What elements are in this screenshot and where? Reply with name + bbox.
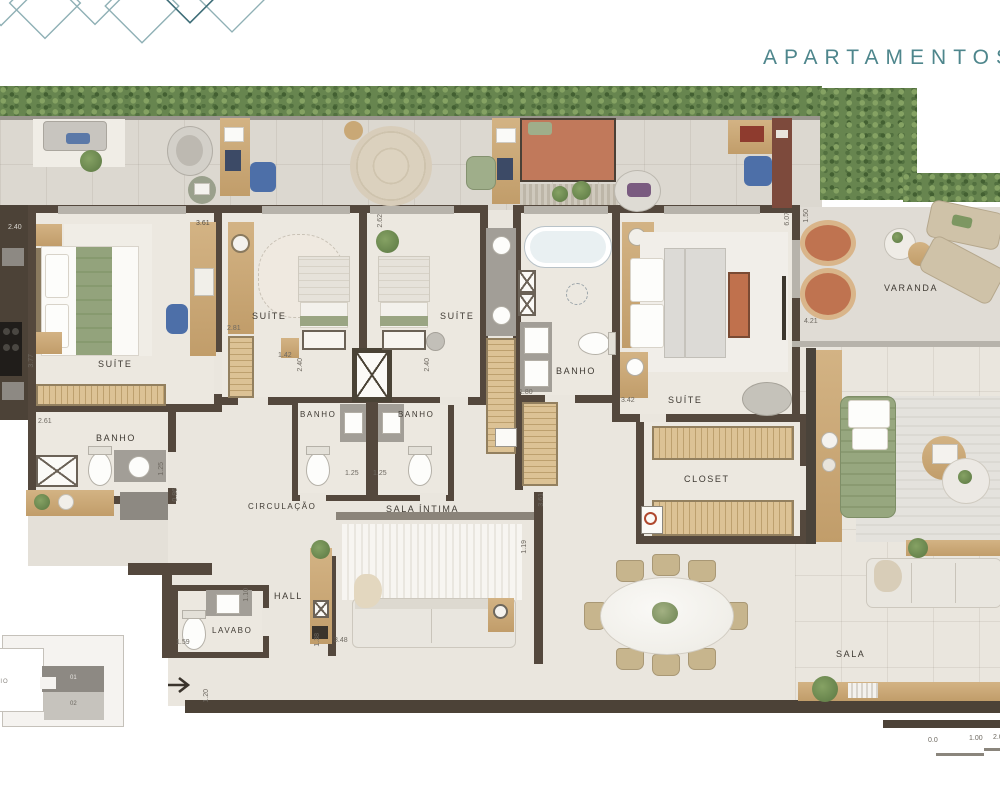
dimension: 2.40	[297, 358, 304, 372]
shower-box-icon	[36, 455, 78, 487]
sink-icon	[626, 358, 644, 376]
blue-chair	[744, 156, 772, 186]
shower-drain-icon	[566, 283, 588, 305]
dimension: 3.48	[334, 637, 348, 644]
wall-clock-deco	[231, 234, 250, 253]
sideboard-deco	[848, 683, 878, 698]
door-gap	[238, 397, 268, 405]
notebook	[225, 150, 241, 171]
slat-rug	[520, 184, 618, 205]
sink-icon	[128, 456, 150, 478]
room-label: SUÍTE	[668, 395, 703, 405]
green-chair	[466, 156, 496, 190]
bottom-wall	[185, 700, 1000, 713]
door-gap	[214, 352, 222, 394]
sink-icon	[524, 327, 549, 354]
keyplan-notch	[40, 677, 56, 689]
small-table	[344, 121, 363, 140]
door-gap	[640, 414, 666, 422]
blue-pillow	[66, 133, 90, 144]
wall-segment	[162, 570, 172, 658]
dimension: 1.25	[373, 470, 387, 477]
service-door-2	[2, 382, 24, 400]
nightstand	[36, 224, 62, 246]
dining-chair	[652, 554, 680, 576]
toilet-tank	[88, 446, 112, 455]
sofa-throw	[874, 560, 902, 592]
toilet-tank	[408, 446, 432, 455]
bathtub-basin	[530, 231, 606, 263]
magazine-rack	[313, 600, 329, 618]
nightstand	[36, 332, 62, 354]
centerpiece	[652, 602, 678, 624]
bath-mat	[120, 492, 168, 520]
washer-drum	[644, 512, 657, 525]
room-label: SUÍTE	[440, 311, 475, 321]
dimension: 1.50	[803, 209, 810, 223]
room-label: SALA ÍNTIMA	[386, 504, 459, 514]
door-gap	[420, 493, 446, 501]
duvet	[664, 248, 726, 358]
dining-chair	[688, 560, 716, 582]
dimension: 3.77	[28, 354, 35, 368]
blue-chair	[250, 162, 276, 192]
room-label: CLOSET	[684, 474, 730, 484]
bed-frame	[302, 330, 346, 350]
room-label: VARANDA	[884, 283, 938, 293]
console-deco	[822, 458, 836, 472]
bed-double-master	[626, 246, 750, 360]
dining-chair	[616, 560, 644, 582]
papers	[224, 127, 244, 142]
floorplan-page: { "header": { "title": "APARTAMENTOS CO"…	[0, 0, 1000, 800]
terracotta-chair	[800, 268, 856, 320]
dimension: 6.07	[784, 212, 791, 226]
window	[664, 206, 760, 214]
scale-tick: 0.0	[928, 737, 938, 744]
sofa-seam	[431, 603, 432, 643]
wall-segment	[534, 492, 543, 664]
dimension: 3.42	[621, 397, 635, 404]
quilt-pillow	[378, 256, 430, 302]
closet-row-bottom	[652, 500, 794, 536]
brand-logo	[0, 0, 272, 62]
burner-1	[3, 328, 10, 335]
sofa-pillow	[852, 428, 888, 450]
keyplan-side-label: RIO	[0, 679, 9, 685]
bed-single	[378, 256, 430, 352]
dimension: 1.59	[176, 639, 190, 646]
terracotta-chair	[800, 220, 856, 266]
room-label: SALA	[836, 649, 865, 659]
burner-4	[12, 344, 19, 351]
plant-pot	[80, 150, 102, 172]
dimension: 0.86	[172, 488, 179, 502]
room-label: BANHO	[398, 410, 434, 419]
scale-tick: 2.00	[993, 734, 1000, 741]
room-label: BANHO	[96, 433, 136, 443]
entry-arrow-icon	[166, 676, 194, 694]
scale-bar-segment	[936, 753, 984, 756]
green-fold	[380, 316, 428, 326]
quilt-pillow	[298, 256, 350, 302]
toilet-tank	[182, 610, 206, 619]
dimension: 2.81	[227, 325, 241, 332]
cabinet-deco	[776, 130, 788, 138]
dimension: 1.25	[345, 470, 359, 477]
dimension: 4.21	[804, 318, 818, 325]
bottom-right-band	[883, 720, 1000, 728]
shower-door-icon	[518, 293, 536, 316]
scale-bar-segment	[984, 748, 1000, 751]
room-label: BANHO	[556, 366, 596, 376]
sink-icon	[524, 360, 549, 387]
shelf-plant	[311, 540, 330, 559]
sink-icon	[216, 594, 240, 614]
sofa-seam	[911, 563, 912, 603]
room-label: HALL	[274, 591, 303, 601]
keyplan-unit-label: 02	[70, 701, 77, 707]
blue-pouf	[166, 304, 188, 334]
window	[262, 206, 350, 214]
dimension: 3.61	[196, 220, 210, 227]
plant-pot	[572, 181, 591, 200]
door-gap	[168, 452, 176, 488]
room-label: BANHO	[300, 410, 336, 419]
room-label: SUÍTE	[252, 311, 287, 321]
varanda-door	[792, 240, 800, 298]
tv-deco	[194, 268, 214, 296]
toilet-icon	[408, 452, 432, 486]
plant-pot	[552, 186, 568, 202]
papers	[496, 128, 516, 143]
keyplan: 01 02 RIO	[0, 633, 132, 729]
round-chair	[742, 382, 792, 416]
toilet-tank	[306, 446, 330, 455]
keyplan-unit-label: 01	[70, 675, 77, 681]
door-gap	[440, 397, 468, 405]
plant-pot	[376, 230, 399, 253]
green-fold	[300, 316, 348, 326]
door-gap	[300, 493, 326, 501]
bench-terracotta	[728, 272, 750, 338]
bed-frame	[382, 330, 426, 350]
dimension: 1.19	[521, 540, 528, 554]
tray	[194, 183, 210, 195]
plant-pot	[34, 494, 50, 510]
toilet-icon	[578, 332, 610, 355]
round-rug	[350, 126, 432, 206]
egg-chair-cushion	[176, 135, 203, 166]
room-label: LAVABO	[212, 626, 252, 635]
hedge-right-strip	[903, 173, 1000, 202]
console-deco	[821, 432, 838, 449]
pillow	[630, 258, 664, 302]
sofa-seam	[955, 563, 956, 603]
hedge-top	[0, 86, 822, 118]
suite-mid1-closet	[228, 336, 254, 398]
laundry-box	[495, 428, 517, 447]
scale-tick: 1.00	[969, 735, 983, 742]
toilet-tank	[608, 332, 616, 355]
green-throw	[76, 247, 112, 355]
shaft-x-icon	[352, 348, 392, 402]
tv-panel-line	[782, 276, 786, 340]
sideboard-plant	[812, 676, 838, 702]
bed-single	[298, 256, 350, 352]
dimension: 1.25	[158, 462, 165, 476]
pillow	[45, 254, 69, 298]
closet-row-top	[652, 426, 794, 460]
speaker-deco	[493, 604, 508, 619]
red-laptop	[740, 126, 764, 142]
door-gap	[262, 608, 269, 636]
daybed-pillow	[528, 122, 552, 135]
service-door-1	[2, 248, 24, 266]
table-plant	[892, 232, 903, 243]
notebook	[497, 158, 513, 180]
dimension: 1.80	[519, 389, 533, 396]
sink-icon	[344, 412, 363, 434]
dining-chair	[652, 654, 680, 676]
dimension: 1.38	[314, 633, 321, 647]
deco-bowl	[58, 494, 74, 510]
burner-3	[3, 344, 10, 351]
sofa-pillow	[848, 400, 890, 428]
toilet-icon	[306, 452, 330, 486]
dimension: 1.10	[243, 588, 250, 602]
hall-wardrobe	[522, 402, 558, 486]
burner-2	[12, 328, 19, 335]
page-title: APARTAMENTOS CO	[763, 46, 1000, 70]
room-label: CIRCULAÇÃO	[248, 502, 316, 511]
console-plant	[908, 538, 928, 558]
roof-notch	[917, 86, 1000, 173]
sink-icon	[492, 236, 511, 255]
dimension: 2.40	[424, 358, 431, 372]
dimension: 2.62	[377, 214, 384, 228]
dimension: 1.20	[203, 689, 210, 703]
duvet-fold	[684, 248, 686, 358]
dimension: 1.42	[278, 352, 292, 359]
shower-door-icon	[518, 270, 536, 293]
suite-left-closet	[36, 384, 166, 406]
purple-pillow	[627, 183, 651, 197]
dimension: 2.40	[8, 224, 22, 231]
dimension: 3.61	[538, 493, 545, 507]
varanda-glass-wall	[792, 341, 1000, 347]
toilet-icon	[88, 452, 112, 486]
window	[58, 206, 186, 214]
dimension: 2.61	[38, 418, 52, 425]
gray-pouf	[426, 332, 445, 351]
room-label: SUÍTE	[98, 359, 133, 369]
table-plant	[958, 470, 972, 484]
window	[524, 206, 608, 214]
sink-icon	[492, 306, 511, 325]
tv-panel-sala	[806, 348, 816, 544]
pillow	[630, 304, 664, 348]
